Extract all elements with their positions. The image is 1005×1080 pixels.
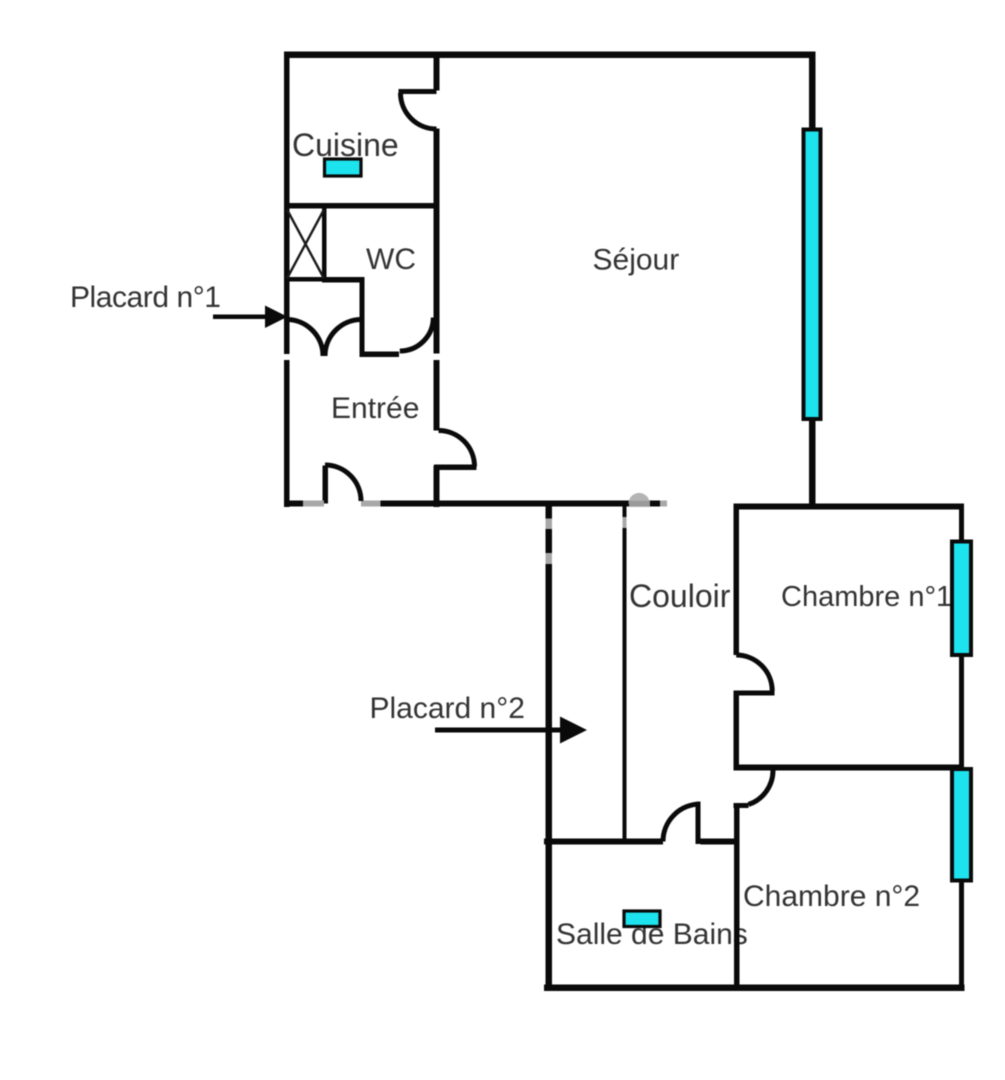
svg-text:Placard n°2: Placard n°2 [370,692,525,725]
svg-text:Couloir: Couloir [629,578,731,614]
svg-text:Entrée: Entrée [331,392,419,425]
svg-text:Chambre n°2: Chambre n°2 [743,880,920,913]
svg-text:Placard n°1: Placard n°1 [70,281,220,314]
svg-text:Chambre n°1: Chambre n°1 [781,581,952,613]
svg-text:Séjour: Séjour [593,244,680,277]
svg-text:WC: WC [366,243,416,276]
